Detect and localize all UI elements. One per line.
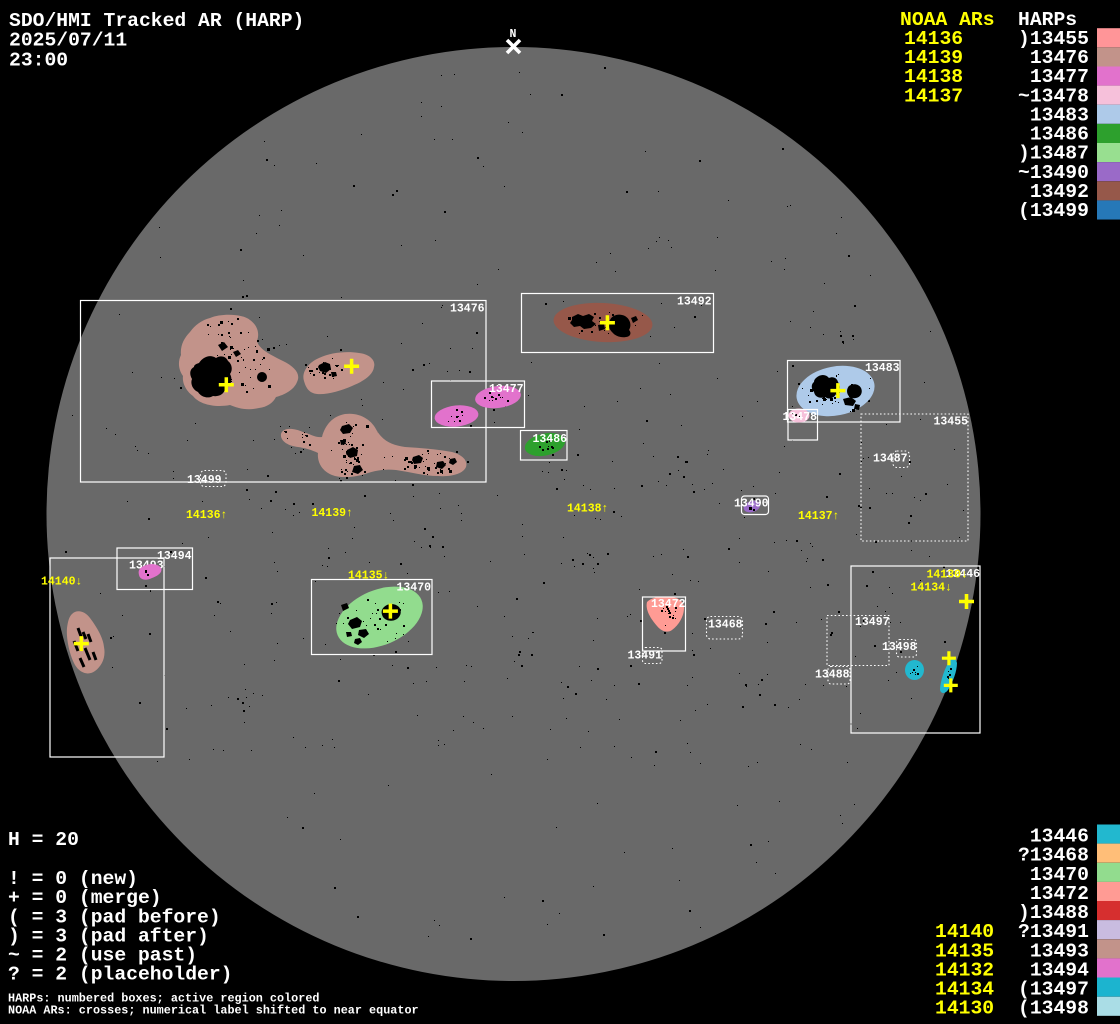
svg-text:14136↑: 14136↑ [186, 509, 227, 522]
svg-text:14130↓: 14130↓ [927, 569, 968, 582]
svg-text:13486: 13486 [533, 433, 568, 446]
svg-text:13455: 13455 [934, 416, 969, 429]
svg-text:2025/07/11: 2025/07/11 [9, 30, 127, 52]
svg-text:SDO/HMI Tracked AR (HARP): SDO/HMI Tracked AR (HARP) [9, 10, 304, 32]
svg-text:N: N [510, 28, 517, 41]
svg-text:13499: 13499 [187, 474, 222, 487]
svg-text:NOAA ARs: crosses; numerical l: NOAA ARs: crosses; numerical label shift… [8, 1004, 419, 1018]
svg-text:13492: 13492 [677, 296, 712, 309]
svg-text:13470: 13470 [397, 582, 432, 595]
svg-text:13476: 13476 [450, 303, 485, 316]
svg-text:13498: 13498 [882, 641, 917, 654]
svg-text:14139↑: 14139↑ [312, 507, 353, 520]
svg-text:H = 20: H = 20 [8, 829, 79, 851]
svg-text:(13499: (13499 [1018, 200, 1089, 222]
svg-text:14137: 14137 [904, 85, 963, 107]
svg-text:13491: 13491 [628, 650, 663, 663]
svg-text:(13498: (13498 [1018, 998, 1089, 1020]
svg-text:13483: 13483 [865, 362, 900, 375]
svg-text:13487: 13487 [873, 453, 908, 466]
svg-text:13490: 13490 [734, 498, 769, 511]
svg-text:13472: 13472 [651, 598, 686, 611]
svg-text:13488: 13488 [815, 669, 850, 682]
svg-text:23:00: 23:00 [9, 49, 68, 71]
svg-text:14134↓: 14134↓ [911, 582, 952, 595]
svg-text:13494: 13494 [157, 550, 192, 563]
svg-text:13468: 13468 [708, 619, 743, 632]
svg-text:13477: 13477 [489, 383, 524, 396]
svg-text:? = 2 (placeholder): ? = 2 (placeholder) [8, 964, 232, 986]
svg-text:14140↓: 14140↓ [41, 576, 82, 589]
svg-text:14138↑: 14138↑ [567, 503, 608, 516]
svg-text:13478: 13478 [783, 411, 818, 424]
svg-text:14130: 14130 [935, 998, 994, 1020]
svg-text:14135↓: 14135↓ [348, 570, 389, 583]
svg-text:13497: 13497 [855, 616, 890, 629]
svg-text:14137↑: 14137↑ [798, 510, 839, 523]
